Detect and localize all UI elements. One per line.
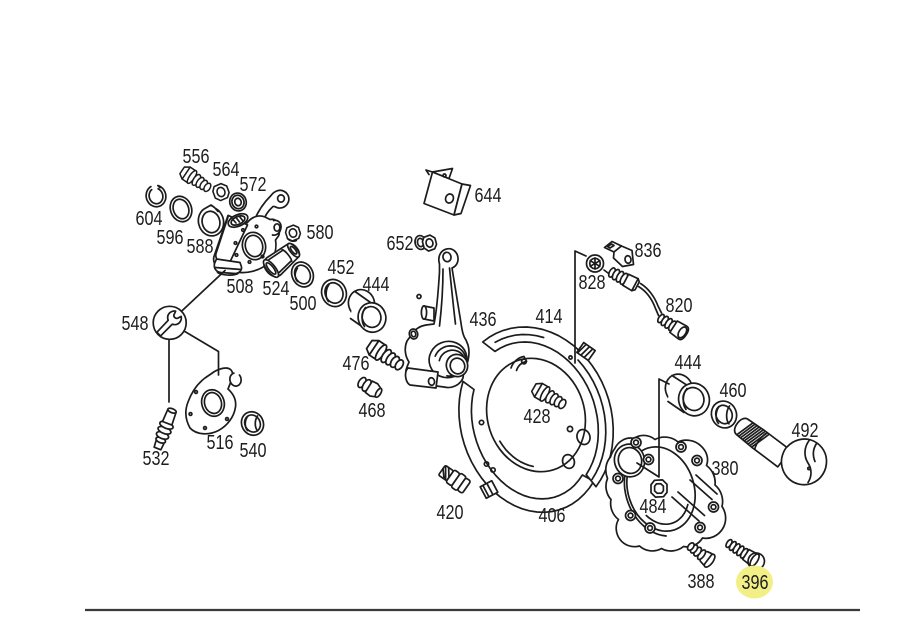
svg-text:444: 444 bbox=[675, 352, 702, 374]
svg-text:414: 414 bbox=[536, 306, 563, 328]
svg-text:820: 820 bbox=[666, 295, 693, 317]
svg-text:492: 492 bbox=[792, 420, 819, 442]
svg-text:484: 484 bbox=[640, 496, 667, 518]
svg-text:476: 476 bbox=[343, 353, 370, 375]
svg-text:540: 540 bbox=[240, 440, 267, 462]
svg-text:460: 460 bbox=[720, 380, 747, 402]
svg-text:828: 828 bbox=[579, 272, 606, 294]
svg-text:572: 572 bbox=[240, 174, 267, 196]
svg-text:836: 836 bbox=[635, 240, 662, 262]
svg-text:588: 588 bbox=[187, 236, 214, 258]
svg-text:468: 468 bbox=[359, 400, 386, 422]
svg-text:436: 436 bbox=[470, 309, 497, 331]
svg-text:444: 444 bbox=[363, 274, 390, 296]
svg-text:420: 420 bbox=[437, 502, 464, 524]
svg-text:524: 524 bbox=[263, 278, 290, 300]
svg-text:652: 652 bbox=[387, 233, 414, 255]
svg-text:508: 508 bbox=[227, 276, 254, 298]
svg-text:532: 532 bbox=[143, 448, 170, 470]
svg-text:396: 396 bbox=[742, 572, 769, 594]
svg-text:644: 644 bbox=[475, 185, 502, 207]
svg-text:548: 548 bbox=[122, 313, 149, 335]
svg-text:406: 406 bbox=[539, 505, 566, 527]
svg-text:580: 580 bbox=[307, 222, 334, 244]
svg-text:388: 388 bbox=[688, 571, 715, 593]
svg-text:428: 428 bbox=[524, 406, 551, 428]
svg-text:380: 380 bbox=[712, 458, 739, 480]
svg-text:516: 516 bbox=[207, 432, 234, 454]
svg-text:452: 452 bbox=[328, 257, 355, 279]
svg-text:500: 500 bbox=[290, 293, 317, 315]
svg-text:556: 556 bbox=[183, 146, 210, 168]
svg-text:596: 596 bbox=[157, 227, 184, 249]
svg-text:564: 564 bbox=[213, 159, 240, 181]
